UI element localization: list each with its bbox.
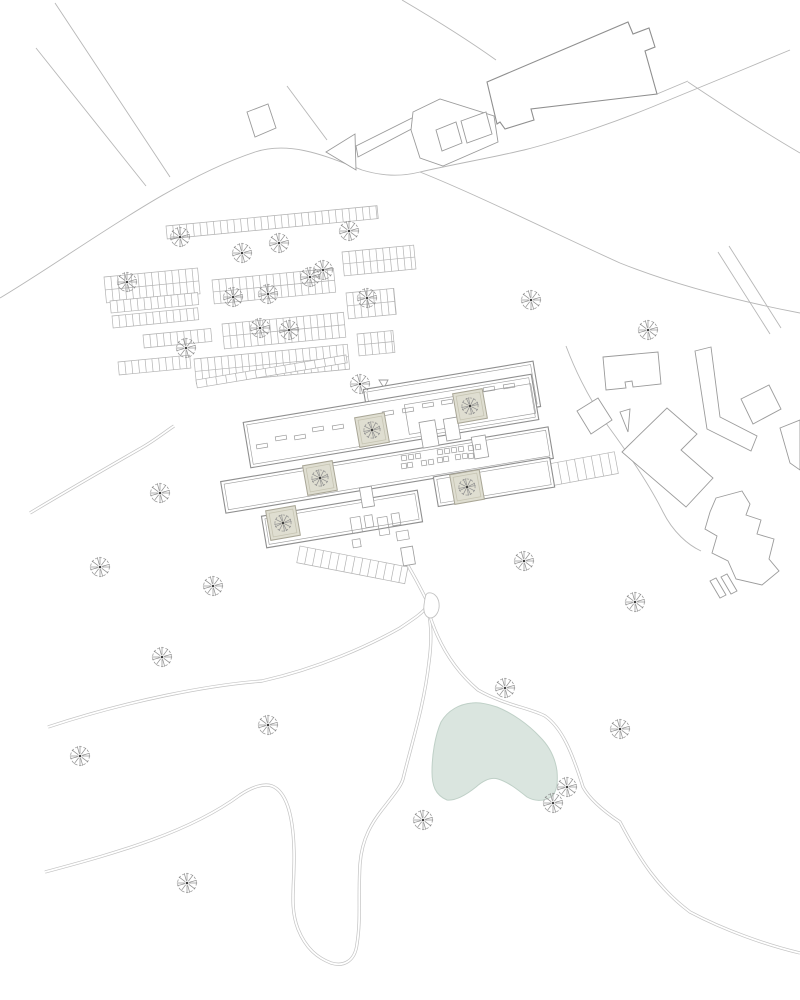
tree-trunk-dot bbox=[99, 566, 102, 569]
courtyard-4 bbox=[266, 506, 301, 541]
tree-trunk-dot bbox=[241, 252, 244, 255]
tree-trunk-dot bbox=[288, 329, 291, 332]
tree-trunk-dot bbox=[504, 687, 507, 690]
tree-trunk-dot bbox=[186, 882, 189, 885]
tree-trunk-dot bbox=[267, 724, 270, 727]
tree-trunk-dot bbox=[267, 293, 270, 296]
tree-trunk-dot bbox=[552, 802, 555, 805]
tree-trunk-dot bbox=[348, 230, 351, 233]
tree-trunk-dot bbox=[366, 297, 369, 300]
tree-trunk-dot bbox=[161, 656, 164, 659]
tree-trunk-dot bbox=[647, 329, 650, 332]
tree-trunk-dot bbox=[126, 281, 129, 284]
teardrop-island bbox=[424, 593, 439, 618]
tree-trunk-dot bbox=[566, 786, 569, 789]
tree-trunk-dot bbox=[422, 819, 425, 822]
tree-trunk-dot bbox=[322, 269, 325, 272]
tree-trunk-dot bbox=[232, 296, 235, 299]
tree-trunk-dot bbox=[259, 327, 262, 330]
parking-row-11 bbox=[357, 331, 395, 356]
courtyard-2 bbox=[303, 461, 338, 496]
site-plan-drawing bbox=[0, 0, 800, 1000]
tree-trunk-dot bbox=[212, 585, 215, 588]
tree-trunk-dot bbox=[159, 492, 162, 495]
tree-trunk-dot bbox=[530, 299, 533, 302]
bar-connector-4 bbox=[401, 546, 416, 566]
tree-trunk-dot bbox=[619, 728, 622, 731]
tree-trunk-dot bbox=[359, 383, 362, 386]
courtyard-0 bbox=[355, 413, 390, 448]
tree-trunk-dot bbox=[79, 755, 82, 758]
tree-trunk-dot bbox=[185, 347, 188, 350]
tree-trunk-dot bbox=[309, 276, 312, 279]
courtyard-1 bbox=[453, 389, 488, 424]
tree-trunk-dot bbox=[634, 601, 637, 604]
tree-trunk-dot bbox=[278, 242, 281, 245]
bar-connector-rect bbox=[401, 546, 416, 566]
courtyard-3 bbox=[450, 470, 485, 505]
tree-trunk-dot bbox=[179, 236, 182, 239]
tree-trunk-dot bbox=[523, 560, 526, 563]
site-plan-page bbox=[0, 0, 800, 1000]
